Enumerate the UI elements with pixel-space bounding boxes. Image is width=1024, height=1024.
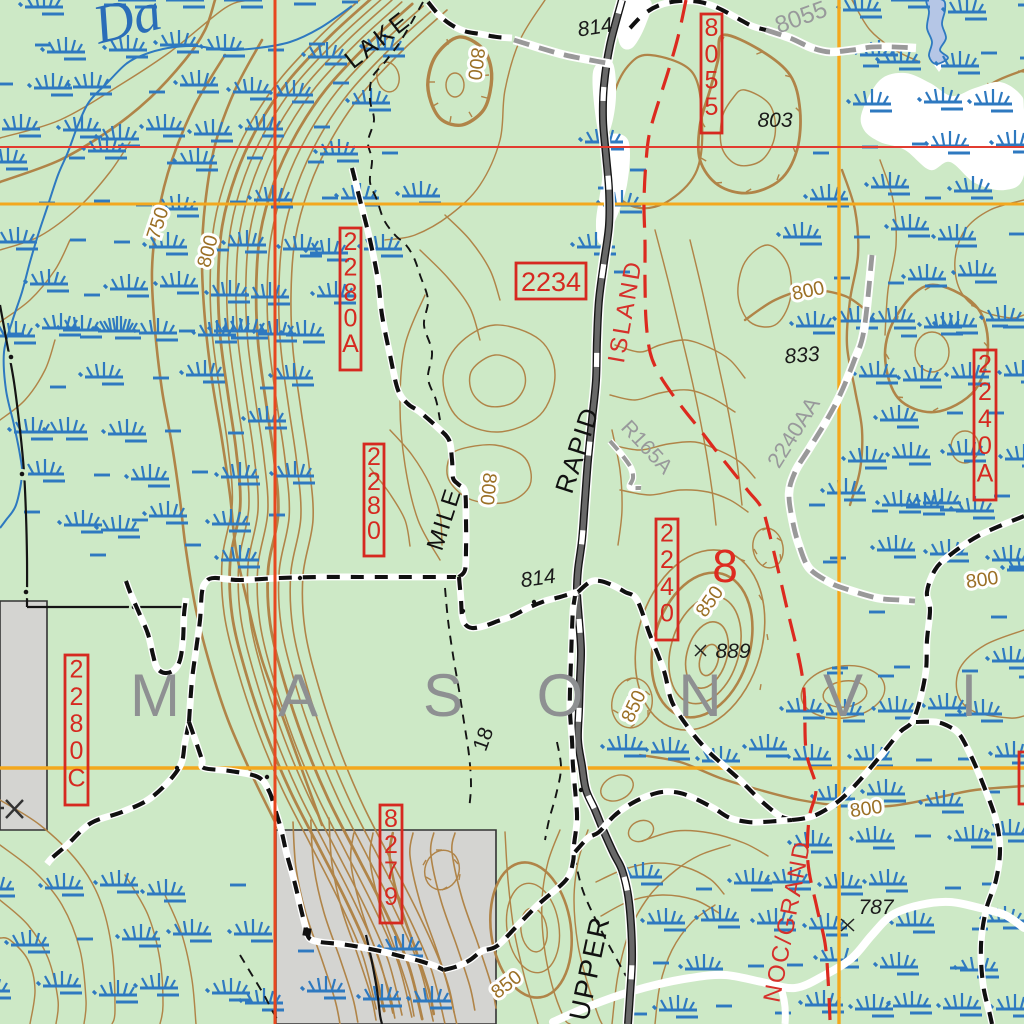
svg-text:A: A <box>342 330 359 358</box>
svg-text:803: 803 <box>757 109 792 132</box>
svg-text:5: 5 <box>705 67 719 95</box>
svg-text:833: 833 <box>784 342 821 368</box>
svg-text:0: 0 <box>978 432 992 460</box>
svg-text:814: 814 <box>519 565 557 593</box>
svg-text:0: 0 <box>367 517 381 545</box>
svg-text:2: 2 <box>978 378 992 406</box>
svg-text:889: 889 <box>715 640 750 663</box>
svg-text:O: O <box>537 662 584 729</box>
svg-text:N: N <box>678 662 721 729</box>
svg-text:8: 8 <box>705 14 719 42</box>
svg-text:7: 7 <box>384 857 398 885</box>
svg-text:2: 2 <box>344 228 358 256</box>
svg-text:2: 2 <box>978 351 992 379</box>
svg-text:M: M <box>130 662 180 729</box>
svg-text:800: 800 <box>475 472 500 507</box>
svg-text:0: 0 <box>660 600 674 628</box>
svg-text:0: 0 <box>705 40 719 68</box>
svg-text:2: 2 <box>70 683 84 711</box>
svg-text:4: 4 <box>978 405 992 433</box>
svg-text:I: I <box>961 662 978 729</box>
svg-text:C: C <box>67 764 85 792</box>
svg-text:4: 4 <box>660 573 674 601</box>
svg-text:5: 5 <box>705 93 719 121</box>
svg-text:S: S <box>423 662 463 729</box>
svg-text:A: A <box>278 662 318 729</box>
svg-text:8: 8 <box>384 805 398 833</box>
svg-text:2: 2 <box>384 831 398 859</box>
svg-text:800: 800 <box>964 567 999 593</box>
svg-text:2: 2 <box>344 253 358 281</box>
svg-text:0: 0 <box>344 305 358 333</box>
svg-text:800: 800 <box>463 46 489 81</box>
svg-text:2: 2 <box>70 656 84 684</box>
svg-text:2234: 2234 <box>521 267 581 297</box>
svg-text:0: 0 <box>70 737 84 765</box>
svg-text:A: A <box>977 459 994 487</box>
svg-text:8: 8 <box>70 710 84 738</box>
svg-text:V: V <box>823 662 863 729</box>
svg-text:8: 8 <box>712 540 738 592</box>
svg-text:8: 8 <box>344 279 358 307</box>
svg-text:800: 800 <box>848 796 883 822</box>
svg-text:787: 787 <box>858 896 894 919</box>
svg-text:2: 2 <box>660 519 674 547</box>
svg-text:2: 2 <box>660 546 674 574</box>
svg-text:9: 9 <box>384 883 398 911</box>
